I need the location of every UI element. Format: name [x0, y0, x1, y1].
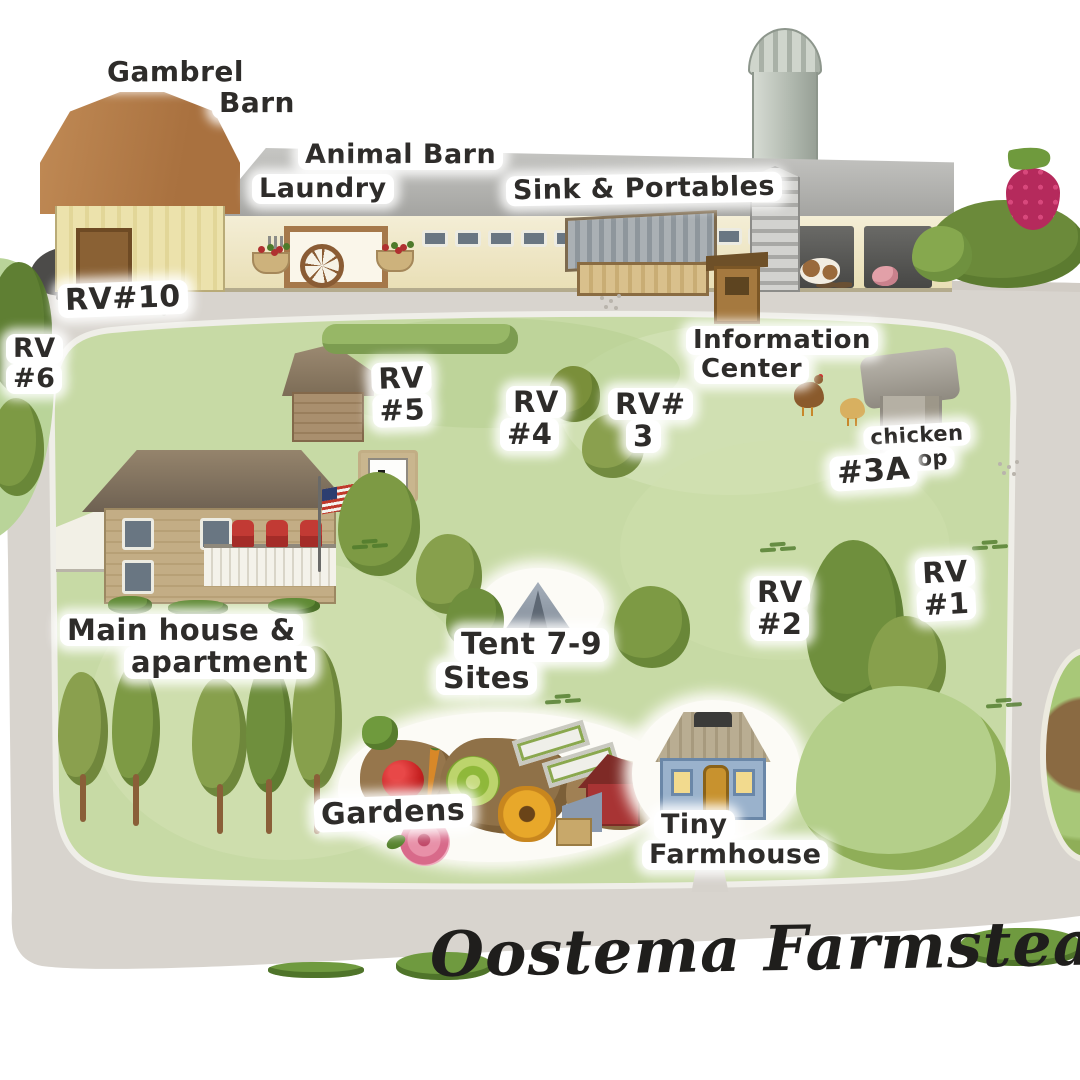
pebbles: [600, 296, 604, 300]
label-rv1[interactable]: RV #1: [914, 554, 977, 622]
farmstead-map: Gambrel Barn Animal Barn Laundry Sink & …: [0, 0, 1080, 1080]
barn-window: [422, 230, 448, 247]
tree: [192, 678, 247, 834]
cow-icon: [800, 258, 840, 284]
label-rv10[interactable]: RV#10: [57, 280, 188, 318]
tree: [614, 586, 690, 668]
pitchfork-icon: [268, 236, 283, 247]
chick-icon: [840, 398, 865, 419]
silo: [752, 72, 818, 168]
label-gardens[interactable]: Gardens: [313, 793, 472, 832]
wagon-wheel-icon: [300, 244, 344, 288]
label-information-center[interactable]: Information Center: [686, 326, 878, 384]
small-shed[interactable]: [292, 392, 364, 442]
red-chair-icon: [232, 520, 254, 547]
hen-icon: [794, 382, 824, 408]
shrub: [268, 598, 320, 614]
label-main-house[interactable]: Main house & apartment: [60, 614, 315, 679]
tree: [112, 664, 160, 826]
pebbles: [998, 462, 1002, 466]
info-booth[interactable]: [714, 266, 760, 324]
house-window: [122, 560, 154, 594]
barn-window: [716, 228, 742, 245]
crate: [556, 818, 592, 846]
pig-icon: [872, 266, 898, 286]
label-gambrel-barn[interactable]: Gambrel Barn: [100, 56, 302, 119]
label-rv5[interactable]: RV #5: [371, 361, 433, 428]
flower-basket-icon: [376, 250, 414, 272]
map-title: Oostema Farmstead: [429, 906, 1080, 991]
barn-window: [455, 230, 481, 247]
label-laundry[interactable]: Laundry: [252, 174, 394, 204]
tree: [246, 662, 292, 834]
label-tent-sites[interactable]: Tent 7-9 Sites: [436, 628, 609, 695]
farmhouse-window: [733, 769, 755, 796]
flag-pole: [318, 476, 321, 572]
label-sink-portables[interactable]: Sink & Portables: [506, 172, 782, 207]
label-rv4[interactable]: RV #4: [500, 386, 566, 451]
sink-portables-shelter[interactable]: [577, 262, 709, 296]
sunflower-icon: [498, 786, 556, 842]
house-window: [122, 518, 154, 550]
label-rv6[interactable]: RV #6: [6, 334, 63, 394]
tree: [58, 672, 108, 822]
label-rv3[interactable]: RV# 3: [608, 388, 693, 453]
farmhouse-window: [671, 769, 693, 796]
label-tiny-farmhouse[interactable]: Tiny Farmhouse: [642, 810, 828, 870]
tree: [338, 472, 420, 576]
barn-window: [488, 230, 514, 247]
barn-window: [521, 230, 547, 247]
shrub: [108, 596, 152, 614]
label-animal-barn[interactable]: Animal Barn: [298, 140, 503, 170]
red-chair-icon: [266, 520, 288, 547]
raspberry-bushes: [912, 226, 972, 282]
grass-swash: [268, 962, 364, 978]
deck: [204, 544, 336, 586]
label-rv2[interactable]: RV #2: [750, 576, 810, 641]
flower-basket-icon: [252, 252, 290, 274]
label-3a[interactable]: #3A: [829, 451, 918, 492]
farmhouse-door: [703, 765, 729, 815]
broccoli-icon: [362, 716, 398, 750]
hedge: [322, 324, 518, 354]
